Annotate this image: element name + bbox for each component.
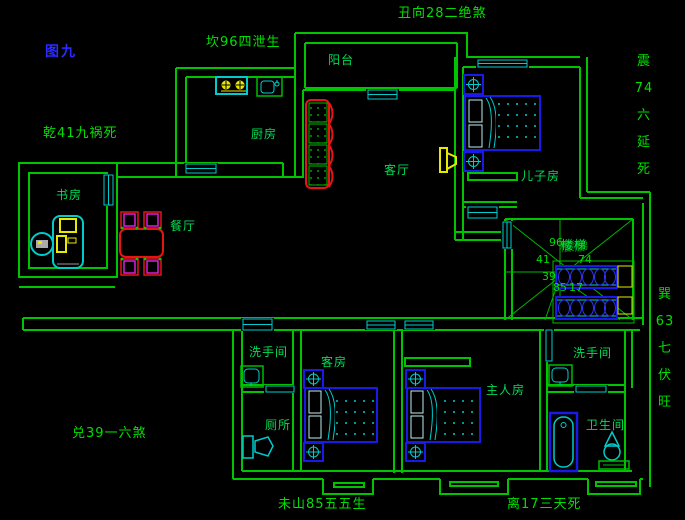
bed-sons bbox=[465, 96, 540, 150]
compass-char: 七 bbox=[654, 342, 676, 369]
toilet-left bbox=[243, 436, 273, 458]
compass-char: 巽 bbox=[654, 288, 676, 315]
stair-number-74: 74 bbox=[578, 254, 592, 265]
figure-number-label: 图九 bbox=[45, 45, 77, 59]
room-label-bathroom-left: 洗手间 bbox=[249, 346, 288, 358]
nightstand bbox=[464, 152, 483, 171]
dining-table bbox=[120, 212, 163, 275]
nightstand bbox=[406, 443, 425, 461]
stair-number-96: 96 bbox=[549, 237, 563, 248]
nightstand bbox=[304, 443, 323, 461]
window-sons-bottom bbox=[466, 206, 499, 219]
compass-northwest: 乾41九祸死 bbox=[43, 127, 118, 140]
compass-east: 震74六延死 bbox=[633, 55, 655, 190]
sink-bathroom-left bbox=[241, 366, 263, 387]
door-bath-left bbox=[264, 385, 296, 393]
bed-guest bbox=[305, 388, 377, 442]
room-label-toilet-room: 厕所 bbox=[265, 419, 291, 431]
bathtub bbox=[550, 413, 577, 471]
compass-char: 震 bbox=[633, 55, 655, 82]
compass-north: 坎96四泄生 bbox=[206, 36, 281, 49]
window-corridor bbox=[241, 318, 274, 331]
compass-south: 离17三天死 bbox=[507, 498, 582, 511]
compass-char: 伏 bbox=[654, 369, 676, 396]
desk bbox=[53, 216, 83, 268]
floorplan-canvas: 图九 坎96四泄生丑向28二绝煞震74六延死巽63七伏旺离17三天死未山85五五… bbox=[0, 0, 685, 520]
dining-chairs bbox=[121, 212, 162, 275]
desk-chair bbox=[31, 233, 53, 255]
compass-char: 74 bbox=[633, 82, 655, 109]
tv bbox=[440, 148, 456, 172]
window-master-right bbox=[544, 329, 554, 362]
compass-char: 63 bbox=[654, 315, 676, 342]
nightstand bbox=[304, 370, 323, 388]
nightstand bbox=[406, 370, 425, 388]
window-stair-left bbox=[501, 221, 513, 249]
window-master-top bbox=[403, 320, 435, 330]
room-label-kitchen: 厨房 bbox=[251, 128, 277, 140]
room-label-master-room: 主人房 bbox=[486, 384, 525, 396]
door-bath-right bbox=[574, 385, 608, 393]
room-label-stairs-overlapped: 楼梯 bbox=[561, 239, 587, 251]
stove bbox=[216, 77, 247, 94]
window-kitchen bbox=[184, 163, 218, 174]
compass-char: 六 bbox=[633, 109, 655, 136]
room-label-dining-room: 餐厅 bbox=[170, 220, 196, 232]
window-guest-top bbox=[365, 320, 397, 330]
bed-master bbox=[407, 388, 480, 442]
room-label-bathroom-ensuite: 卫生间 bbox=[586, 419, 625, 431]
compass-southwest: 未山85五五生 bbox=[278, 498, 367, 511]
window-study bbox=[102, 174, 115, 206]
compass-char: 延 bbox=[633, 136, 655, 163]
compass-char: 死 bbox=[633, 163, 655, 190]
room-label-sons-room: 儿子房 bbox=[521, 170, 560, 182]
stair-number-41: 41 bbox=[536, 254, 550, 265]
compass-char: 旺 bbox=[654, 396, 676, 423]
room-label-guest-room: 客房 bbox=[321, 356, 347, 368]
room-label-living-room: 客厅 bbox=[384, 164, 410, 176]
compass-southeast: 巽63七伏旺 bbox=[654, 288, 676, 423]
compass-west: 兑39一六煞 bbox=[72, 427, 147, 440]
sink-bathroom-right bbox=[549, 365, 572, 386]
room-label-balcony: 阳台 bbox=[328, 54, 354, 66]
kitchen-sink bbox=[257, 77, 282, 96]
window-sons-top bbox=[476, 59, 529, 68]
room-label-study: 书房 bbox=[56, 189, 82, 201]
sofa bbox=[306, 100, 333, 188]
window-balcony bbox=[366, 89, 399, 100]
compass-north-northeast: 丑向28二绝煞 bbox=[398, 7, 487, 20]
stair-number-17: 17 bbox=[569, 282, 583, 293]
room-label-bathroom-right: 洗手间 bbox=[573, 347, 612, 359]
nightstand bbox=[464, 75, 483, 94]
stair-number-85: 85 bbox=[553, 282, 567, 293]
